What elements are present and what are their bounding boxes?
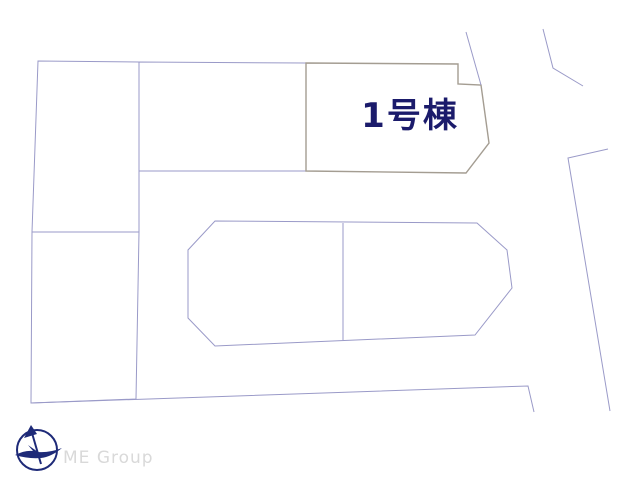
site-plan-svg [0, 0, 640, 480]
plot-center-block [188, 221, 512, 346]
road-edge-right [568, 149, 610, 411]
plot-lower-left [31, 232, 139, 403]
plot-upper-left [32, 61, 139, 232]
plot-middle-top [139, 62, 306, 171]
highlighted-plot-label: 1号棟 [350, 98, 470, 135]
site-plan-map: 1号棟 ME Group [0, 0, 640, 480]
road-edge-top-right [543, 29, 583, 86]
road-edge-top-center [466, 32, 481, 85]
